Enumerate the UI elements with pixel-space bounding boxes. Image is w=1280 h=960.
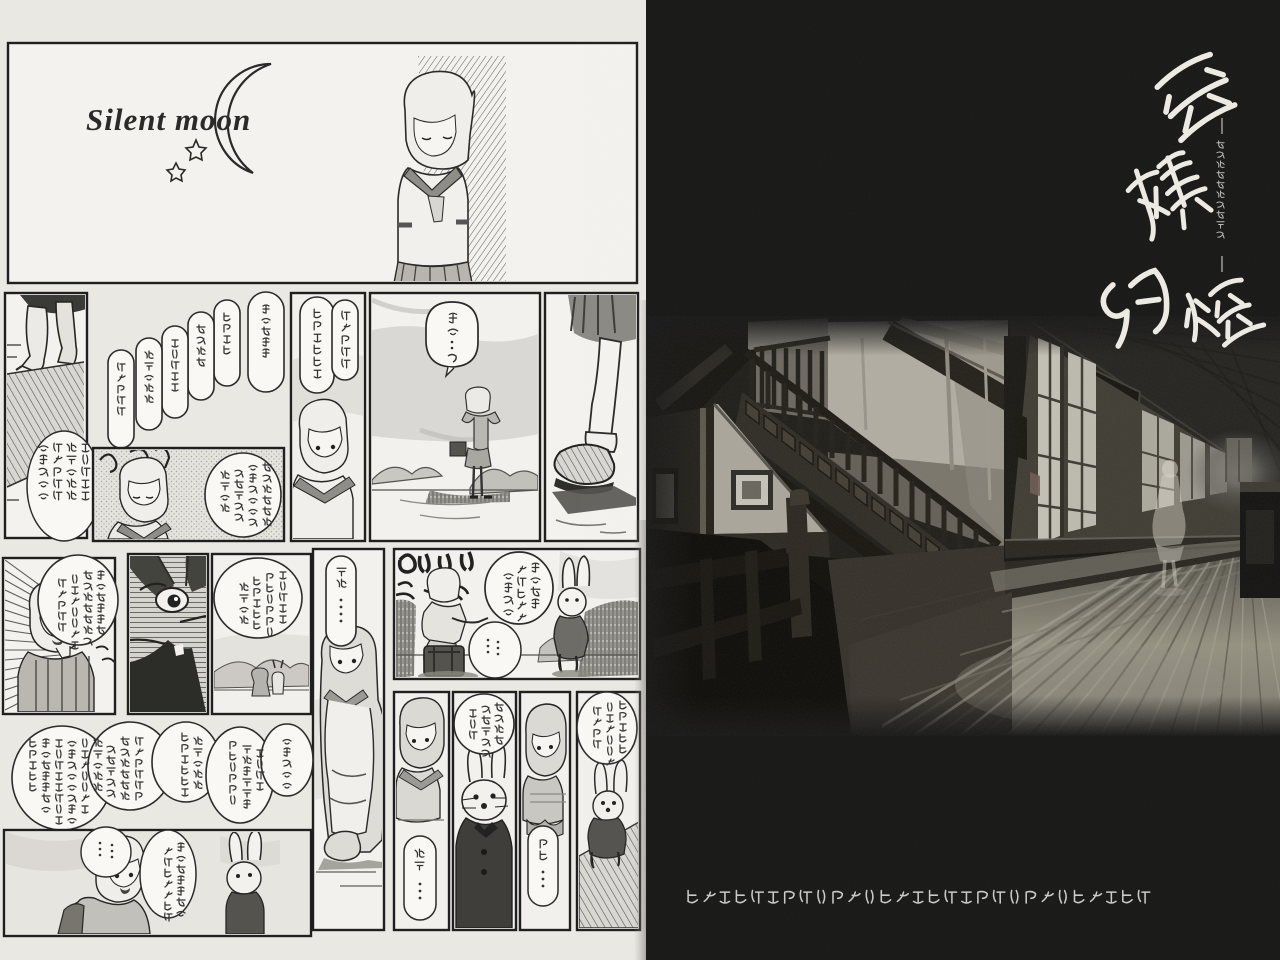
svg-text:Silent moon: Silent moon — [86, 102, 251, 137]
